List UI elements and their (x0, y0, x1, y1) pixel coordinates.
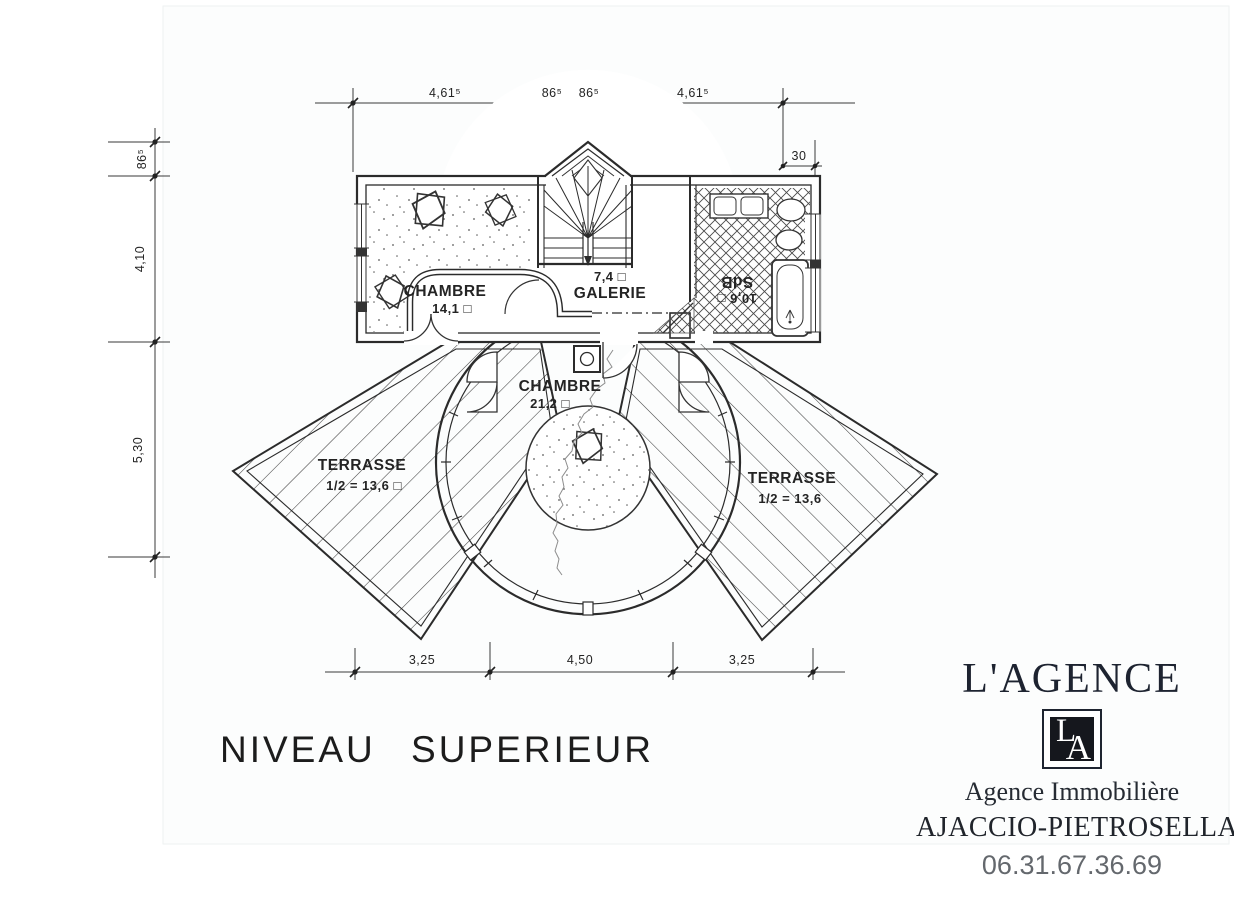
dim-top-4: 4,61⁵ (677, 86, 709, 100)
label-chambre1-name: CHAMBRE (404, 283, 487, 300)
label-chambre2-name: CHAMBRE (519, 378, 602, 395)
agency-logo-monogram: L A (1050, 717, 1094, 761)
agency-logo-letter-a: A (1066, 729, 1091, 768)
label-terrasse-left-area: 1/2 = 13,6 □ (326, 478, 402, 493)
dim-bottom-1: 3,25 (409, 653, 435, 667)
agency-logo: L A (1042, 709, 1102, 769)
column-fixture (574, 346, 600, 372)
agency-phone: 06.31.67.36.69 (916, 850, 1228, 881)
label-chambre1-area: 14,1 □ (432, 301, 472, 316)
label-terrasse-right-area: 1/2 = 13,6 (758, 491, 821, 506)
agency-location: AJACCIO-PIETROSELLA (916, 812, 1228, 844)
dim-top-offset: 30 (792, 149, 807, 163)
dim-left-2: 4,10 (133, 246, 147, 272)
upper-block (354, 142, 821, 378)
page-title: NIVEAU SUPERIEUR (220, 729, 654, 770)
agency-subtitle: Agence Immobilière (916, 777, 1228, 807)
dim-bottom-3: 3,25 (729, 653, 755, 667)
dim-top-2: 86⁵ (542, 86, 563, 100)
agency-branding: L'AGENCE L A Agence Immobilière AJACCIO-… (916, 658, 1228, 881)
label-terrasse-right-name: TERRASSE (748, 470, 836, 487)
dim-bottom-2: 4,50 (567, 653, 593, 667)
label-galerie-name: GALERIE (574, 285, 646, 302)
dim-left-3: 5,30 (131, 437, 145, 463)
label-sdb-area: 10,6 □ (717, 291, 757, 306)
label-sdb-name: SdB (721, 273, 754, 290)
label-terrasse-left-name: TERRASSE (318, 457, 406, 474)
dim-top-3: 86⁵ (579, 86, 600, 100)
floor-plan-page: CHAMBRE 14,1 □ 7,4 □ GALERIE 10,6 □ SdB … (0, 0, 1234, 924)
dim-top-1: 4,61⁵ (429, 86, 461, 100)
label-galerie-area: 7,4 □ (594, 269, 626, 284)
dim-left-1: 86⁵ (135, 149, 149, 170)
agency-name: L'AGENCE (916, 658, 1228, 700)
label-chambre2-area: 21,2 □ (530, 396, 570, 411)
